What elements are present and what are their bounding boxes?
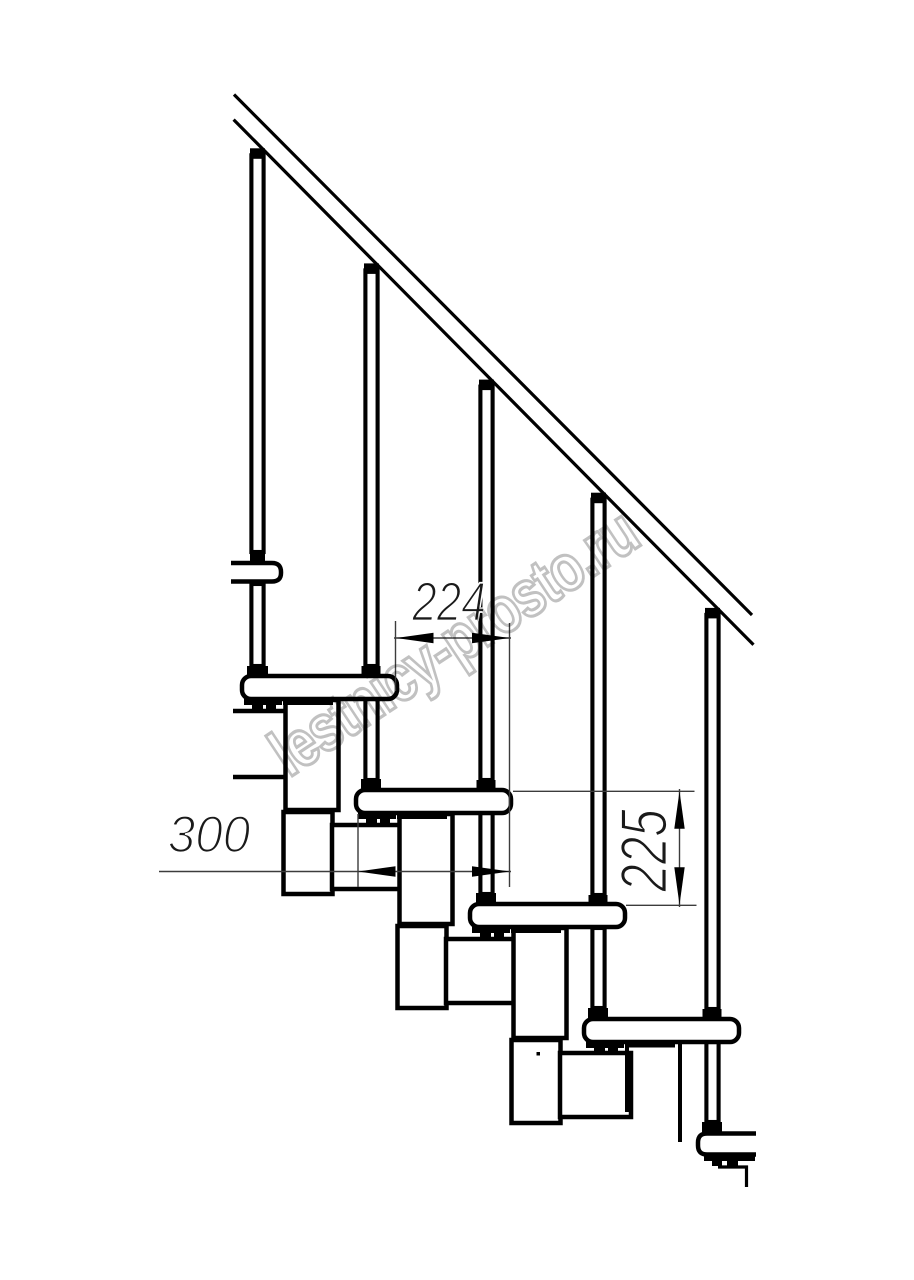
svg-text:225: 225 xyxy=(608,809,682,893)
svg-text:300: 300 xyxy=(168,805,250,863)
